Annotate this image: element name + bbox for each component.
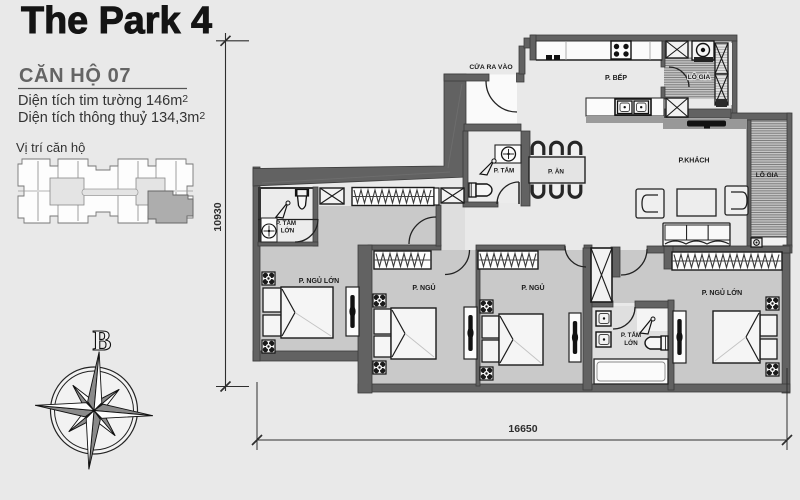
- svg-text:Vị trí căn hộ: Vị trí căn hộ: [16, 140, 85, 155]
- svg-text:Diện tích tim tường 146m2: Diện tích tim tường 146m2: [18, 93, 188, 109]
- svg-text:Diện tích thông thuỷ 134,3m2: Diện tích thông thuỷ 134,3m2: [18, 110, 205, 126]
- svg-text:P.KHÁCH: P.KHÁCH: [679, 156, 710, 165]
- svg-text:LỚN: LỚN: [281, 227, 295, 235]
- svg-text:P. NGỦ LỚN: P. NGỦ LỚN: [299, 276, 339, 285]
- svg-text:CĂN HỘ 07: CĂN HỘ 07: [19, 63, 131, 87]
- svg-text:LÔ GIA: LÔ GIA: [688, 72, 711, 81]
- svg-text:LÔ GIA: LÔ GIA: [756, 170, 779, 179]
- svg-text:P. ĂN: P. ĂN: [548, 167, 564, 176]
- svg-text:B: B: [93, 326, 112, 357]
- svg-text:P. NGỦ: P. NGỦ: [412, 283, 435, 292]
- svg-text:P. TẮM: P. TẮM: [494, 166, 515, 175]
- svg-text:LỚN: LỚN: [624, 339, 638, 347]
- svg-text:P. NGỦ: P. NGỦ: [521, 283, 544, 292]
- svg-text:P. TẮM: P. TẮM: [276, 219, 296, 227]
- svg-text:The Park 4: The Park 4: [21, 0, 212, 42]
- svg-text:16650: 16650: [508, 423, 537, 435]
- svg-text:10930: 10930: [212, 202, 224, 231]
- svg-text:CỬA RA VÀO: CỬA RA VÀO: [469, 62, 512, 71]
- svg-text:P. NGỦ LỚN: P. NGỦ LỚN: [702, 288, 742, 297]
- svg-text:P. TẮM: P. TẮM: [621, 331, 641, 339]
